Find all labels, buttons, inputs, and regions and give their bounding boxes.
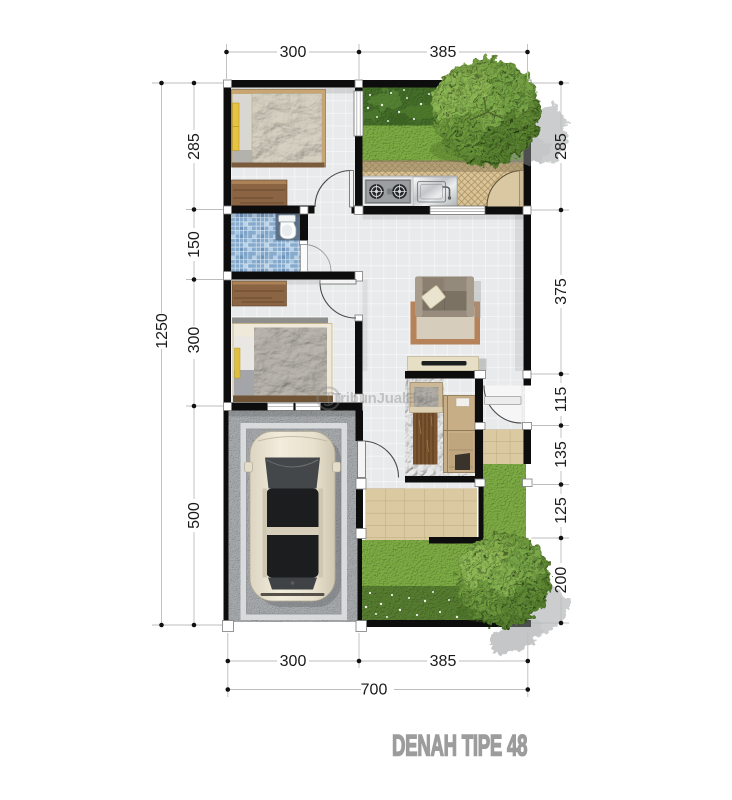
svg-text:300: 300: [280, 44, 307, 61]
svg-text:TribunJualBeli: TribunJualBeli: [332, 390, 433, 407]
svg-text:135: 135: [553, 441, 570, 468]
svg-text:700: 700: [361, 682, 388, 699]
svg-text:375: 375: [553, 278, 570, 305]
svg-text:300: 300: [280, 653, 307, 670]
svg-text:150: 150: [186, 231, 203, 258]
svg-text:1250: 1250: [154, 313, 171, 349]
svg-text:DENAH TIPE 48: DENAH TIPE 48: [392, 729, 528, 763]
svg-text:115: 115: [553, 387, 570, 413]
svg-text:300: 300: [186, 327, 203, 354]
svg-text:285: 285: [553, 133, 570, 160]
svg-text:200: 200: [553, 567, 570, 594]
svg-text:500: 500: [186, 502, 203, 529]
svg-text:125: 125: [553, 497, 570, 524]
svg-text:385: 385: [430, 44, 457, 61]
svg-text:385: 385: [430, 653, 457, 670]
svg-text:285: 285: [186, 133, 203, 160]
